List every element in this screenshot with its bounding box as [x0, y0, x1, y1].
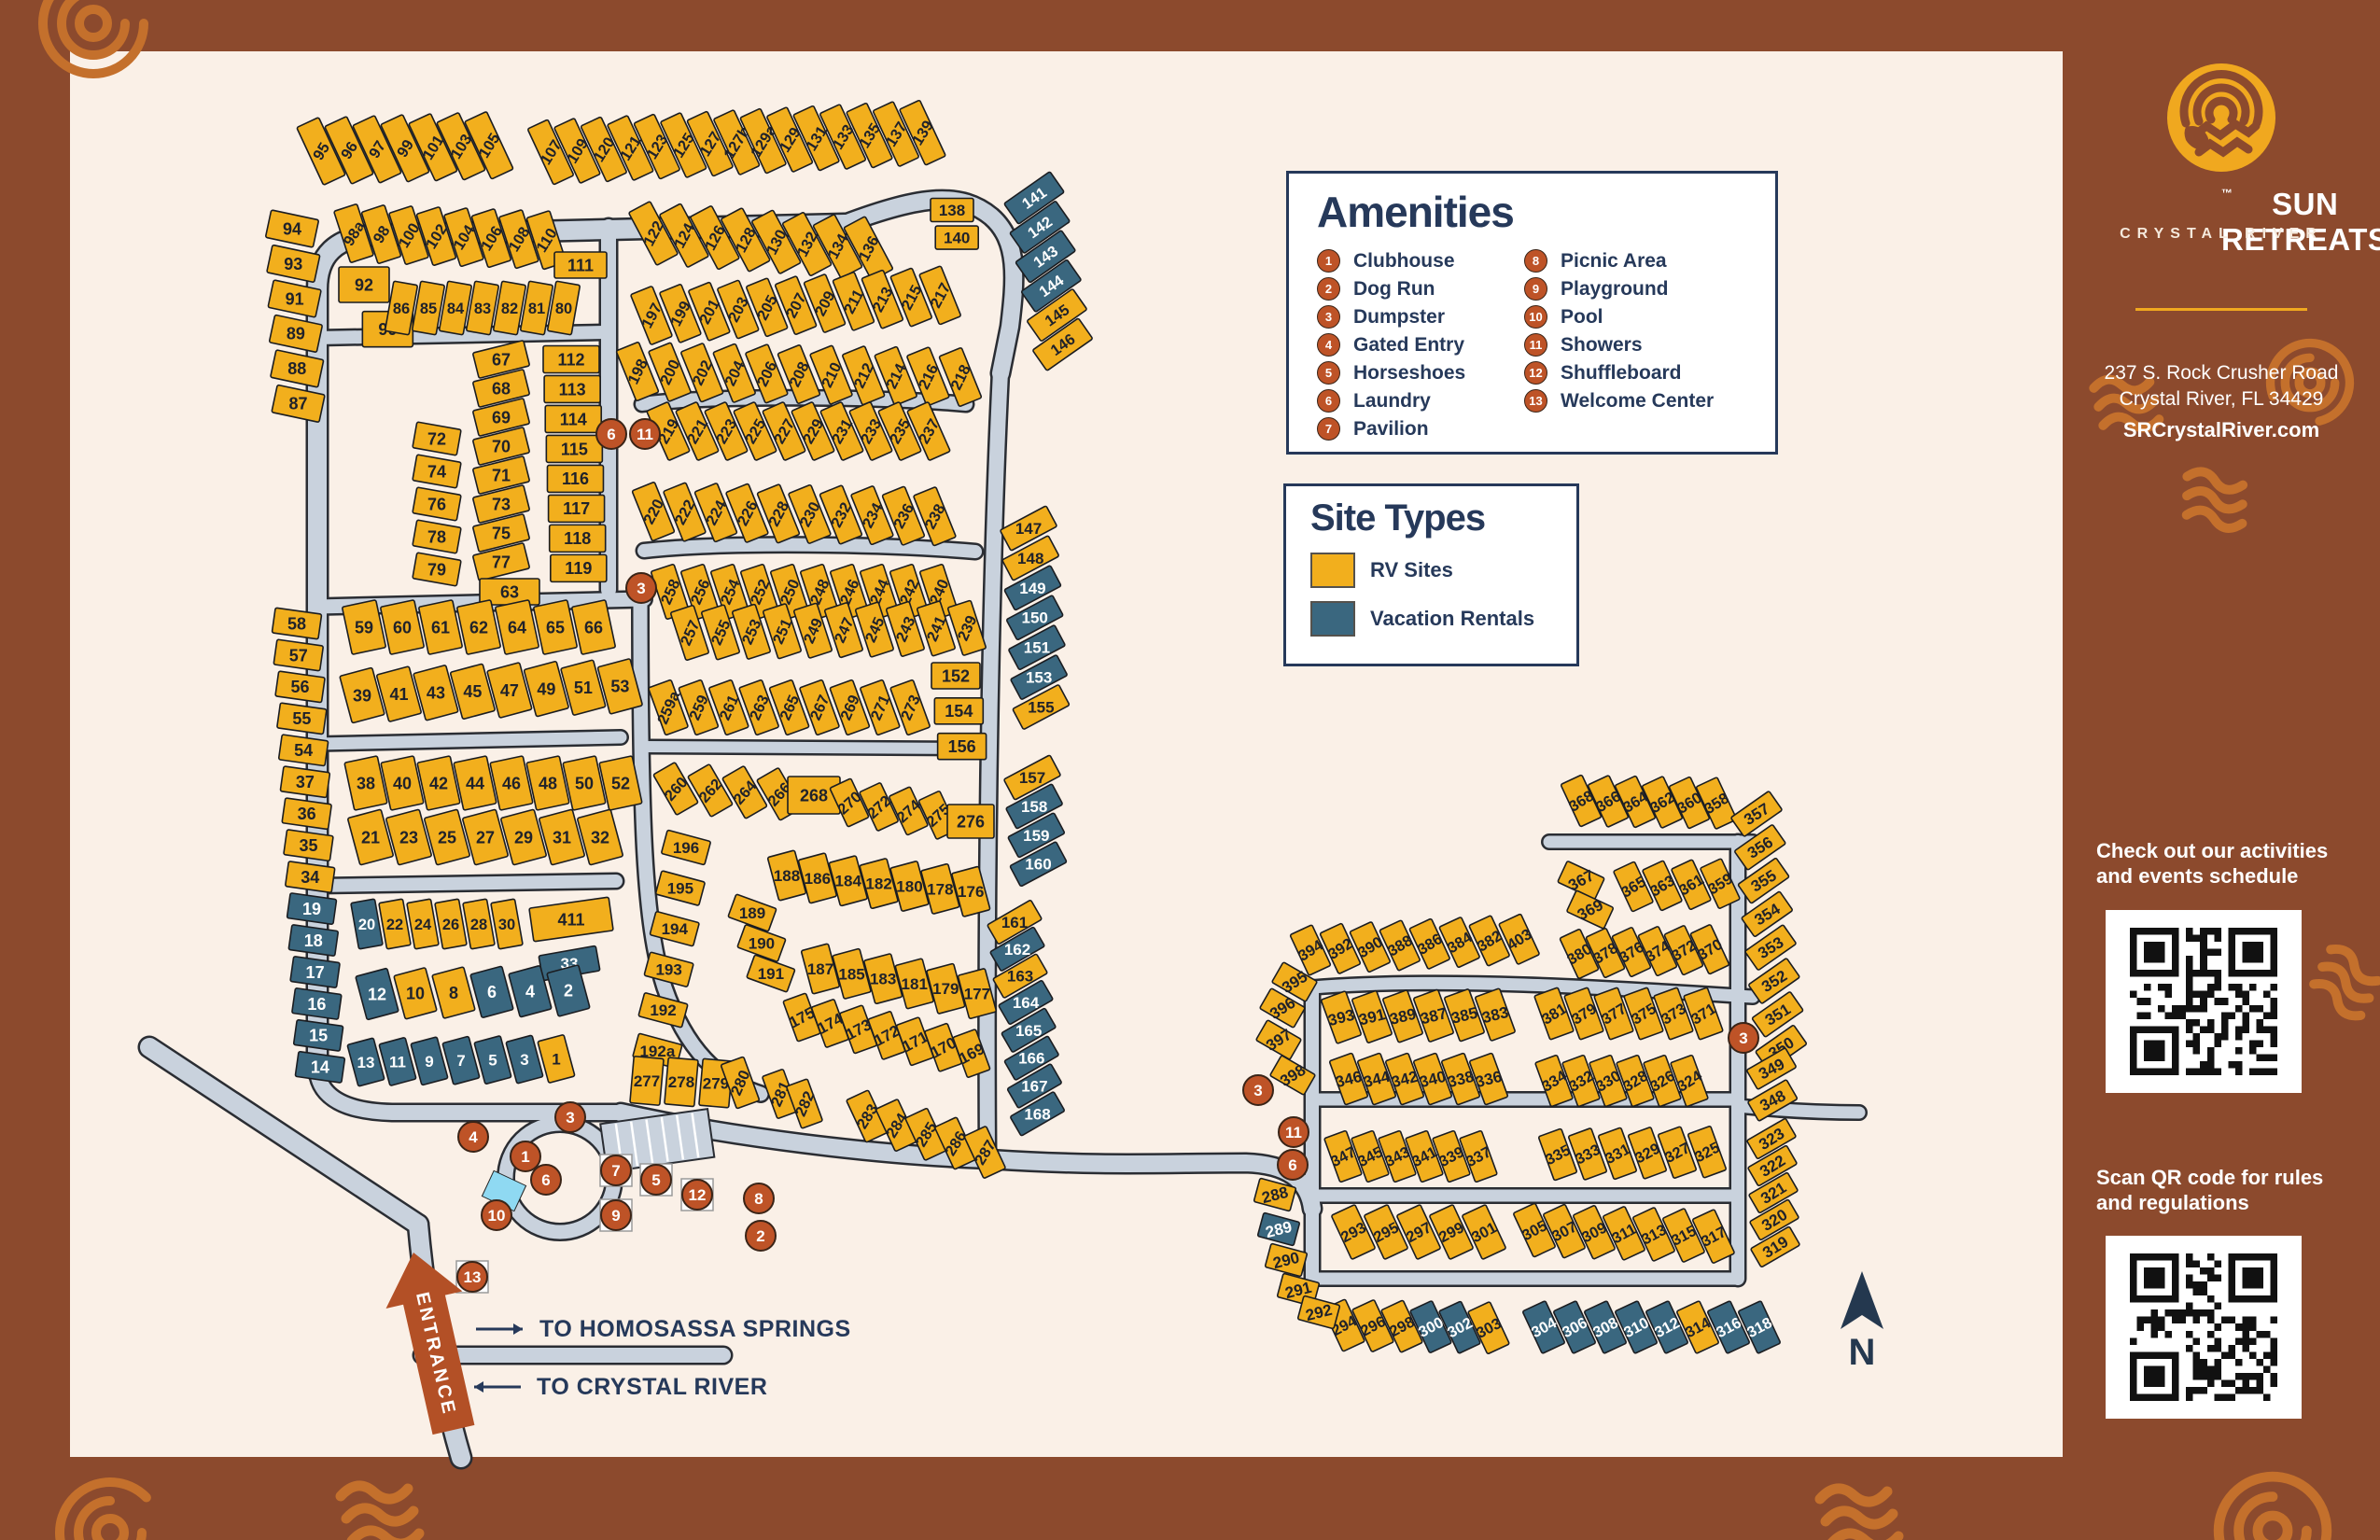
amenity-number-badge: 6 [1317, 389, 1340, 413]
lot-number: 155 [1028, 698, 1054, 716]
sun-retreats-logo [2165, 62, 2277, 174]
lot-number: 29 [514, 828, 533, 847]
amenity-number-badge: 4 [1317, 333, 1340, 357]
amenity-label: Dumpster [1353, 306, 1445, 329]
amenity-label: Showers [1561, 334, 1643, 357]
amenities-legend: Amenities 1Clubhouse2Dog Run3Dumpster4Ga… [1286, 171, 1778, 455]
amenity-item: 12Shuffleboard [1524, 362, 1731, 384]
direction-arrow-head [513, 1323, 523, 1335]
lot-number: 117 [563, 499, 590, 518]
lot-number: 185 [838, 965, 864, 983]
lot-number: 153 [1026, 669, 1052, 687]
lot-number: 166 [1018, 1050, 1044, 1068]
sidebar: SUN RETREATS™ CRYSTAL RIVER 237 S. Rock … [2063, 0, 2380, 1540]
lot-number: 57 [289, 646, 308, 665]
lot-number: 79 [427, 560, 446, 579]
lot-number: 111 [567, 256, 594, 274]
trademark: ™ [2221, 187, 2233, 200]
lot-number: 183 [870, 971, 896, 988]
marker-number: 1 [521, 1148, 529, 1166]
lot-number: 176 [958, 883, 984, 901]
brand-location: CRYSTAL RIVER [2063, 226, 2380, 243]
lot-number: 7 [456, 1052, 465, 1070]
address-line-1: 237 S. Rock Crusher Road [2063, 362, 2380, 385]
lot-number: 72 [427, 429, 446, 448]
lot-number: 93 [284, 255, 302, 273]
site-type-item: Vacation Rentals [1310, 601, 1576, 637]
amenities-col-1: 1Clubhouse2Dog Run3Dumpster4Gated Entry5… [1317, 250, 1524, 446]
lot-number: 22 [386, 917, 403, 933]
amenity-item: 1Clubhouse [1317, 250, 1524, 272]
site-types-legend: Site Types RV SitesVacation Rentals [1283, 483, 1579, 666]
lot-number: 83 [474, 301, 491, 317]
lot-number: 44 [466, 774, 484, 792]
amenity-number-badge: 10 [1524, 305, 1547, 329]
lot-number: 9 [425, 1053, 433, 1071]
lot-number: 178 [927, 880, 953, 898]
lot-number: 87 [289, 395, 308, 413]
marker-number: 6 [607, 426, 615, 443]
lot-number: 167 [1021, 1077, 1047, 1095]
lot-number: 25 [438, 828, 456, 847]
marker-number: 10 [488, 1207, 506, 1225]
lot-number: 10 [406, 985, 425, 1003]
lot-number: 91 [286, 289, 304, 308]
lot-number: 66 [584, 618, 603, 637]
lot-number: 156 [948, 737, 976, 756]
lot-number: 180 [896, 877, 922, 895]
lot-number: 162 [1004, 941, 1030, 959]
lot-number: 43 [427, 684, 445, 703]
lot-number: 73 [492, 495, 511, 513]
lot-number: 149 [1019, 580, 1045, 597]
lot-number: 190 [749, 934, 775, 952]
lot-number: 187 [807, 960, 833, 978]
amenity-item: 3Dumpster [1317, 306, 1524, 328]
lot-number: 115 [561, 440, 588, 458]
amenities-list: 1Clubhouse2Dog Run3Dumpster4Gated Entry5… [1317, 250, 1775, 446]
lot-number: 1 [552, 1050, 560, 1068]
address-line-2: Crystal River, FL 34429 [2063, 388, 2380, 411]
lot-number: 116 [562, 469, 589, 488]
lot-number: 12 [368, 985, 386, 1003]
lot-number: 51 [574, 679, 593, 697]
amenity-label: Shuffleboard [1561, 362, 1682, 385]
lot-number: 3 [520, 1051, 528, 1069]
spiral-motif [28, 0, 159, 89]
qr1-card [2106, 910, 2302, 1093]
amenity-label: Pavilion [1353, 418, 1429, 441]
amenity-label: Dog Run [1353, 278, 1435, 301]
lot-number: 45 [463, 682, 482, 701]
lot-number: 71 [492, 466, 511, 484]
amenity-item: 11Showers [1524, 334, 1731, 356]
site-type-label: RV Sites [1370, 558, 1453, 582]
amenity-number-badge: 7 [1317, 417, 1340, 441]
lot-number: 179 [932, 980, 959, 998]
lot-number: 54 [294, 741, 313, 760]
site-type-swatch-yellow [1310, 553, 1355, 588]
lot-number: 112 [557, 350, 584, 369]
lot-number: 11 [389, 1053, 406, 1071]
amenity-number-badge: 12 [1524, 361, 1547, 385]
lot-number: 177 [964, 986, 990, 1003]
lot-number: 39 [353, 686, 371, 705]
amenity-label: Clubhouse [1353, 250, 1455, 273]
qr2-heading: Scan QR code for rules and regulations [2096, 1165, 2358, 1215]
marker-number: 11 [637, 426, 653, 443]
lot-number: 85 [420, 301, 437, 317]
lot-number: 52 [611, 774, 630, 792]
lot-number: 159 [1023, 827, 1049, 845]
to-crystal-river-label: TO CRYSTAL RIVER [537, 1374, 767, 1400]
lot-number: 40 [393, 774, 412, 792]
amenity-number-badge: 9 [1524, 277, 1547, 301]
lot-number: 158 [1021, 798, 1047, 816]
lot-number: 24 [414, 917, 432, 933]
lot-number: 63 [500, 582, 519, 601]
lot-number: 35 [299, 836, 317, 855]
lot-number: 2 [564, 982, 573, 1001]
lot-number: 61 [431, 618, 450, 637]
lot-number: 118 [564, 529, 591, 548]
lot-number: 32 [591, 828, 609, 847]
amenity-label: Picnic Area [1561, 250, 1667, 273]
amenity-item: 8Picnic Area [1524, 250, 1731, 272]
lot-number: 65 [546, 618, 565, 637]
lot-number: 84 [447, 301, 465, 317]
lot-number: 15 [309, 1027, 328, 1045]
lot-number: 67 [492, 350, 511, 369]
lot-number: 41 [389, 685, 408, 704]
lot-number: 189 [739, 904, 765, 922]
lot-number: 192 [650, 1001, 676, 1019]
lot-number: 154 [945, 702, 973, 721]
lot-number: 94 [283, 219, 301, 238]
amenity-item: 4Gated Entry [1317, 334, 1524, 356]
lot-number: 88 [287, 359, 306, 378]
activities-qr-code [2130, 928, 2277, 1075]
lot-number: 26 [442, 917, 459, 933]
lot-number: 89 [287, 325, 305, 343]
lot-number: 191 [758, 965, 784, 983]
marker-number: 5 [651, 1171, 660, 1189]
lot-number: 77 [492, 553, 511, 571]
marker-number: 3 [637, 580, 645, 597]
lot-number: 150 [1022, 609, 1048, 627]
amenity-item: 10Pool [1524, 306, 1731, 328]
lot-number: 68 [492, 379, 511, 398]
lot-number: 6 [487, 983, 497, 1001]
amenity-number-badge: 8 [1524, 249, 1547, 273]
compass-n-label: N [1849, 1332, 1876, 1373]
marker-number: 6 [541, 1171, 550, 1189]
amenities-col-2: 8Picnic Area9Playground10Pool11Showers12… [1524, 250, 1731, 446]
direction-arrow-head [474, 1381, 483, 1393]
lot-number: 161 [1001, 914, 1028, 931]
marker-number: 13 [464, 1268, 482, 1286]
lot-number: 69 [492, 408, 511, 427]
lot-number: 82 [501, 301, 518, 317]
lot-number: 19 [302, 900, 321, 918]
compass-arrow [1841, 1271, 1883, 1329]
lot-number: 13 [357, 1054, 375, 1071]
amenity-item: 7Pavilion [1317, 418, 1524, 440]
amenity-label: Pool [1561, 306, 1603, 329]
marker-number: 12 [689, 1186, 707, 1204]
marker-number: 9 [611, 1207, 620, 1225]
lot-number: 48 [539, 774, 557, 792]
lot-number: 80 [555, 301, 572, 317]
amenity-number-badge: 5 [1317, 361, 1340, 385]
site-types-list: RV SitesVacation Rentals [1310, 553, 1576, 637]
lot-number: 193 [655, 961, 681, 979]
lot-number: 49 [537, 679, 555, 698]
lot-number: 147 [1015, 520, 1042, 538]
marker-number: 3 [1253, 1082, 1262, 1099]
marker-number: 3 [1739, 1029, 1747, 1047]
amenity-label: Horseshoes [1353, 362, 1465, 385]
site-types-title: Site Types [1310, 497, 1576, 539]
lot-number: 4 [525, 982, 535, 1001]
lot-number: 138 [939, 202, 965, 219]
lot-number: 53 [610, 678, 629, 696]
lot-number: 34 [301, 868, 319, 887]
lot-number: 46 [502, 774, 521, 792]
lot-number: 276 [957, 812, 985, 831]
wave-motif [331, 1470, 443, 1540]
qr1-heading: Check out our activities and events sche… [2096, 838, 2358, 889]
gold-divider [2135, 308, 2307, 311]
lot-number: 168 [1024, 1105, 1050, 1123]
lot-number: 182 [865, 875, 891, 893]
lot-number: 18 [304, 931, 323, 950]
site-type-swatch-teal [1310, 601, 1355, 637]
lot-number: 8 [449, 984, 458, 1002]
site-type-label: Vacation Rentals [1370, 607, 1534, 631]
amenity-label: Welcome Center [1561, 390, 1714, 413]
lot-number: 58 [287, 614, 306, 633]
marker-number: 3 [566, 1109, 574, 1127]
lot-number: 50 [575, 774, 594, 792]
lot-number: 16 [307, 995, 326, 1014]
amenity-item: 6Laundry [1317, 390, 1524, 412]
lot-number: 75 [492, 524, 511, 542]
lot-number: 17 [306, 963, 325, 982]
lot-number: 151 [1024, 639, 1050, 657]
lot-number: 165 [1015, 1022, 1042, 1040]
lot-number: 60 [393, 618, 412, 637]
lot-number: 186 [805, 870, 831, 888]
lot-number: 194 [662, 920, 689, 938]
lot-number: 37 [296, 773, 315, 791]
lot-number: 62 [469, 618, 488, 637]
amenities-title: Amenities [1317, 187, 1775, 237]
amenity-label: Gated Entry [1353, 334, 1464, 357]
lot-number: 163 [1007, 968, 1033, 986]
lot-number: 27 [476, 828, 495, 847]
page: 9596979910110310510710912012112312512712… [0, 0, 2380, 1540]
lot-number: 113 [559, 380, 586, 399]
lot-number: 140 [944, 229, 970, 246]
amenity-item: 5Horseshoes [1317, 362, 1524, 384]
lot-number: 278 [668, 1073, 694, 1091]
amenity-number-badge: 11 [1524, 333, 1547, 357]
rules-qr-code [2130, 1253, 2277, 1401]
lot-number: 70 [492, 437, 511, 455]
lot-number: 14 [311, 1058, 329, 1077]
lot-number: 74 [427, 462, 446, 481]
lot-number: 160 [1025, 856, 1051, 874]
lot-number: 277 [634, 1072, 660, 1090]
wave-motif [1811, 1473, 1923, 1540]
marker-number: 6 [1288, 1156, 1296, 1174]
marker-number: 8 [754, 1190, 763, 1208]
lot-number: 184 [835, 873, 862, 890]
lot-number: 181 [902, 975, 928, 993]
amenity-number-badge: 2 [1317, 277, 1340, 301]
amenity-number-badge: 1 [1317, 249, 1340, 273]
lot-number: 28 [470, 917, 487, 933]
lot-number: 148 [1017, 550, 1043, 567]
marker-number: 7 [611, 1162, 620, 1180]
to-homosassa-label: TO HOMOSASSA SPRINGS [539, 1316, 851, 1342]
lot-number: 64 [508, 618, 526, 637]
lot-number: 411 [557, 910, 584, 929]
lot-number: 36 [298, 805, 316, 823]
amenity-item: 13Welcome Center [1524, 390, 1731, 412]
amenity-number-badge: 13 [1524, 389, 1547, 413]
site-type-item: RV Sites [1310, 553, 1576, 588]
lot-number: 86 [393, 301, 410, 317]
marker-number: 2 [756, 1227, 764, 1245]
lot-number: 76 [427, 495, 446, 513]
amenity-item: 9Playground [1524, 278, 1731, 300]
qr2-card [2106, 1236, 2302, 1419]
lot-number: 78 [427, 527, 446, 546]
lot-number: 195 [667, 880, 693, 898]
lot-number: 268 [800, 786, 828, 805]
marker-number: 4 [469, 1128, 478, 1146]
site-map: 9596979910110310510710912012112312512712… [0, 0, 2380, 1540]
amenity-label: Laundry [1353, 390, 1431, 413]
lot-number: 152 [942, 666, 970, 685]
lot-number: 21 [361, 828, 380, 847]
lot-number: 23 [399, 828, 418, 847]
amenity-item: 2Dog Run [1317, 278, 1524, 300]
lot-number: 188 [774, 867, 800, 885]
lot-number: 119 [565, 559, 592, 578]
amenity-label: Playground [1561, 278, 1669, 301]
lot-number: 30 [498, 917, 515, 933]
lot-number: 114 [560, 410, 587, 428]
lot-number: 42 [429, 774, 448, 792]
lot-number: 92 [355, 275, 373, 294]
amenity-number-badge: 3 [1317, 305, 1340, 329]
spiral-motif [45, 1467, 175, 1540]
website: SRCrystalRiver.com [2063, 418, 2380, 442]
lot-number: 38 [357, 774, 375, 792]
lot-number: 20 [358, 917, 375, 933]
lot-number: 81 [528, 301, 545, 317]
lot-number: 157 [1019, 769, 1045, 787]
lot-number: 31 [553, 828, 571, 847]
lot-number: 47 [500, 681, 519, 700]
lot-number: 164 [1013, 994, 1040, 1012]
lot-number: 56 [291, 678, 310, 696]
marker-number: 11 [1285, 1124, 1302, 1141]
lot-number: 196 [673, 839, 699, 857]
lot-number: 5 [488, 1052, 497, 1070]
lot-number: 55 [292, 709, 311, 728]
lot-number: 59 [355, 618, 373, 637]
